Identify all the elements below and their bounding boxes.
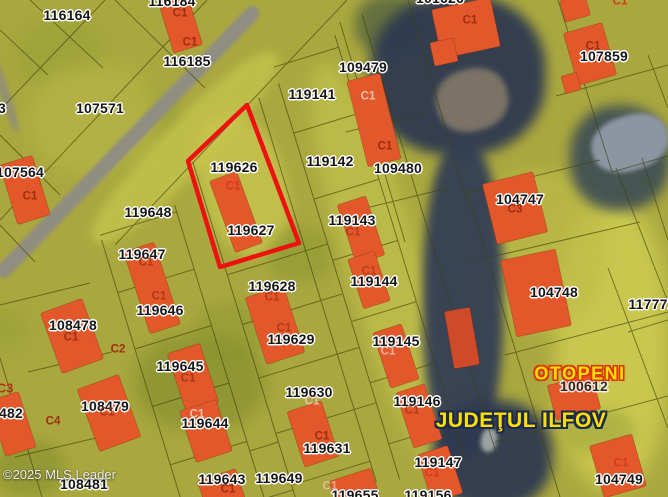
parcel-label: 119648 <box>124 205 171 219</box>
building-unit-label: C1 <box>23 192 38 203</box>
parcel-label: 119646 <box>136 303 183 317</box>
building-unit-label: C1 <box>405 406 420 417</box>
parcel-label: 116185 <box>163 54 210 68</box>
parcel-label: 119145 <box>372 334 419 348</box>
building-unit-label: C4 <box>46 417 61 428</box>
parcel-label: 108482 <box>0 406 23 420</box>
parcel-label: 119627 <box>227 223 274 237</box>
building-unit-label: C1 <box>226 182 241 193</box>
building-unit-label: C1 <box>183 38 198 49</box>
parcel-label: 107571 <box>76 101 124 115</box>
city-label: OTOPENI <box>534 364 625 385</box>
building-unit-label: C1 <box>277 324 292 335</box>
building-unit-label: C1 <box>265 293 280 304</box>
parcel-label: 104748 <box>530 285 578 299</box>
building-unit-label: C1 <box>346 228 361 239</box>
copyright-watermark: ©2025 MLS Leader <box>3 467 116 482</box>
building-unit-label: C1 <box>586 42 601 53</box>
parcel-label: 119644 <box>181 416 228 430</box>
building-unit-label: C1 <box>378 142 393 153</box>
parcel-label: 107564 <box>0 165 44 179</box>
building-unit-label: C1 <box>221 485 236 496</box>
parcel-label: 107563 <box>0 101 6 115</box>
building-unit-label: C1 <box>381 347 396 358</box>
building-unit-label: C1 <box>613 0 628 8</box>
building-unit-label: C1 <box>305 397 320 408</box>
parcel-label: 119626 <box>210 160 257 174</box>
building-unit-label: C1 <box>100 408 115 419</box>
county-label: JUDEŢUL ILFOV <box>436 409 607 433</box>
building-unit-label: C3 <box>0 383 13 394</box>
building-unit-label: C2 <box>111 345 126 356</box>
building-unit-label: C1 <box>614 459 629 470</box>
building-unit-label: C1 <box>64 333 79 344</box>
parcel-label: 119655 <box>331 488 378 497</box>
parcel-label: 119143 <box>328 213 375 227</box>
parcel-label: 119631 <box>303 441 350 455</box>
building-unit-label: C1 <box>139 258 154 269</box>
parcel-label: 119649 <box>255 471 302 485</box>
building-unit-label: C1 <box>425 469 440 480</box>
parcel-label: 116164 <box>43 8 90 22</box>
building-unit-label: C1 <box>315 432 330 443</box>
building-unit-label: C1 <box>173 9 188 20</box>
building-unit-label: C1 <box>181 374 196 385</box>
building-unit-label: C1 <box>323 482 338 493</box>
parcel-label: 119141 <box>288 87 335 101</box>
building-unit-label: C1 <box>361 92 376 103</box>
building-unit-label: C1 <box>463 16 478 27</box>
building-unit-label: C1 <box>362 267 377 278</box>
parcel-label: 119142 <box>306 154 353 168</box>
parcel-label: 109480 <box>374 161 422 175</box>
map-canvas[interactable]: 1161641161841161851075711075631075641196… <box>0 0 668 497</box>
parcel-label: 104749 <box>595 472 643 486</box>
parcel-label: 119645 <box>156 359 203 373</box>
parcel-label: 117771 <box>628 297 668 311</box>
parcel-label: 101626 <box>416 0 464 5</box>
parcel-label: 119156 <box>404 488 451 497</box>
building-unit-label: C1 <box>190 410 205 421</box>
building-unit-label: C3 <box>508 205 523 216</box>
parcel-label: 108478 <box>49 318 97 332</box>
building-unit-label: C1 <box>152 292 167 303</box>
parcel-label: 109479 <box>339 60 387 74</box>
